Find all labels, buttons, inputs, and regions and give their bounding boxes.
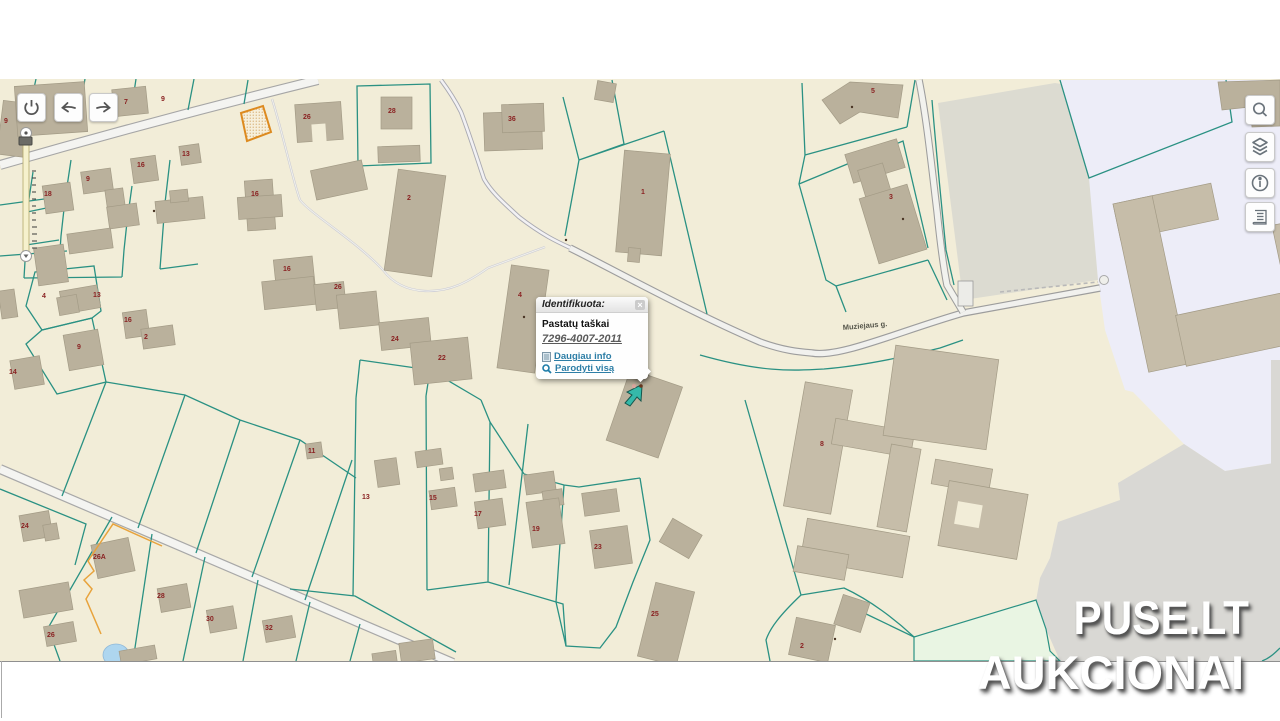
svg-text:9: 9 <box>86 176 90 183</box>
svg-text:36: 36 <box>508 116 516 123</box>
svg-text:8: 8 <box>820 441 824 448</box>
svg-text:9: 9 <box>161 96 165 103</box>
svg-text:26: 26 <box>47 632 55 639</box>
svg-text:5: 5 <box>871 88 875 95</box>
svg-text:1: 1 <box>641 189 645 196</box>
svg-text:14: 14 <box>9 369 17 376</box>
svg-text:16: 16 <box>251 191 259 198</box>
svg-text:15: 15 <box>429 495 437 502</box>
svg-text:16: 16 <box>283 266 291 273</box>
svg-text:18: 18 <box>44 191 52 198</box>
svg-text:28: 28 <box>388 108 396 115</box>
svg-text:13: 13 <box>93 292 101 299</box>
svg-text:28: 28 <box>157 593 165 600</box>
svg-text:13: 13 <box>182 151 190 158</box>
svg-text:26: 26 <box>303 114 311 121</box>
svg-text:23: 23 <box>594 544 602 551</box>
svg-text:32: 32 <box>265 625 273 632</box>
svg-text:30: 30 <box>206 616 214 623</box>
svg-text:2: 2 <box>144 334 148 341</box>
svg-text:4: 4 <box>42 293 46 300</box>
svg-text:2: 2 <box>407 195 411 202</box>
svg-text:3: 3 <box>889 194 893 201</box>
svg-text:24: 24 <box>391 336 399 343</box>
svg-text:16: 16 <box>137 162 145 169</box>
svg-text:2: 2 <box>800 643 804 650</box>
svg-text:9: 9 <box>77 344 81 351</box>
svg-text:13: 13 <box>362 494 370 501</box>
svg-text:9: 9 <box>4 118 8 125</box>
svg-text:11: 11 <box>308 448 316 455</box>
svg-text:4: 4 <box>518 292 522 299</box>
svg-text:26: 26 <box>334 284 342 291</box>
svg-text:19: 19 <box>532 526 540 533</box>
svg-text:7: 7 <box>124 99 128 106</box>
svg-text:26A: 26A <box>93 554 106 561</box>
svg-text:16: 16 <box>124 317 132 324</box>
svg-text:17: 17 <box>474 511 482 518</box>
svg-text:25: 25 <box>651 611 659 618</box>
svg-text:22: 22 <box>438 355 446 362</box>
svg-text:24: 24 <box>21 523 29 530</box>
